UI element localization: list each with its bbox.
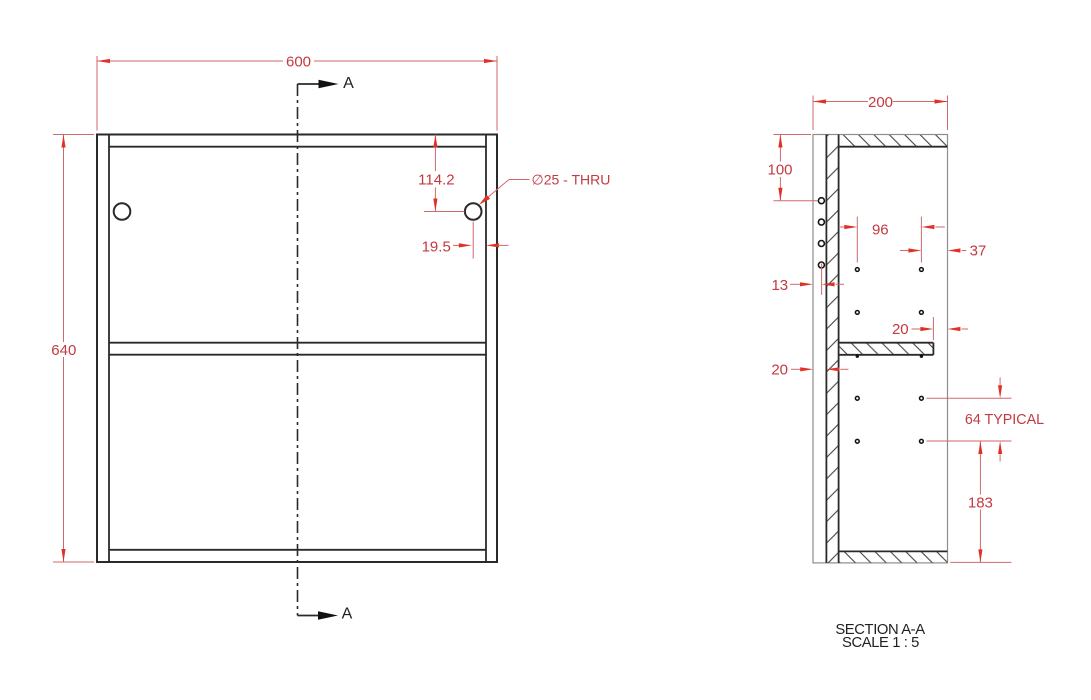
svg-text:13: 13 [771, 277, 788, 294]
svg-text:∅25 - THRU: ∅25 - THRU [532, 171, 611, 187]
svg-text:100: 100 [767, 161, 792, 178]
svg-text:640: 640 [51, 342, 76, 359]
svg-text:114.2: 114.2 [418, 172, 454, 189]
svg-text:600: 600 [286, 53, 311, 70]
svg-text:96: 96 [872, 221, 889, 238]
svg-text:200: 200 [868, 94, 893, 111]
svg-text:19.5: 19.5 [422, 238, 451, 255]
svg-text:183: 183 [968, 494, 993, 511]
svg-text:A: A [343, 75, 354, 92]
svg-text:20: 20 [892, 321, 909, 338]
svg-text:A: A [342, 606, 353, 623]
svg-text:64 TYPICAL: 64 TYPICAL [965, 412, 1044, 428]
svg-text:37: 37 [970, 243, 987, 260]
svg-text:20: 20 [771, 362, 788, 379]
svg-text:SCALE 1 : 5: SCALE 1 : 5 [842, 635, 919, 651]
